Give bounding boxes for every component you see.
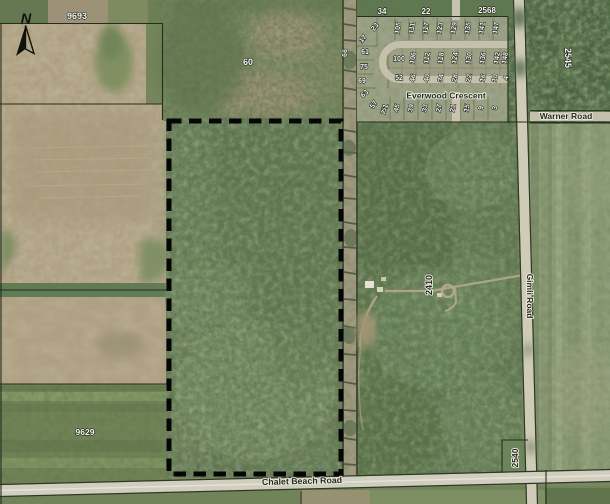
- svg-text:100: 100: [393, 56, 405, 63]
- svg-text:9693: 9693: [67, 11, 87, 21]
- svg-text:2410: 2410: [424, 275, 434, 295]
- svg-text:Everwood Crescent: Everwood Crescent: [406, 91, 486, 101]
- svg-text:33: 33: [421, 104, 429, 113]
- svg-text:34: 34: [378, 7, 387, 16]
- svg-text:2568: 2568: [478, 6, 496, 15]
- svg-text:2540: 2540: [510, 448, 520, 467]
- svg-text:40: 40: [423, 74, 431, 83]
- svg-text:52: 52: [395, 75, 403, 82]
- svg-text:15: 15: [463, 104, 471, 113]
- svg-text:22: 22: [465, 74, 473, 83]
- svg-text:28: 28: [451, 74, 459, 83]
- svg-text:27: 27: [435, 104, 443, 113]
- svg-text:21: 21: [449, 104, 457, 113]
- svg-text:22: 22: [422, 7, 431, 16]
- svg-text:Gimli Road: Gimli Road: [525, 274, 535, 319]
- svg-text:16: 16: [479, 74, 487, 83]
- svg-text:75: 75: [360, 64, 368, 71]
- svg-text:34: 34: [437, 74, 445, 83]
- svg-text:Warner Road: Warner Road: [540, 111, 593, 121]
- svg-text:N: N: [21, 12, 32, 28]
- svg-text:61: 61: [361, 49, 369, 56]
- svg-text:66: 66: [342, 49, 350, 57]
- svg-text:2545: 2545: [563, 48, 573, 68]
- svg-text:9629: 9629: [76, 427, 95, 437]
- svg-text:69: 69: [358, 78, 366, 85]
- svg-text:10: 10: [491, 74, 499, 83]
- svg-text:46: 46: [409, 74, 417, 83]
- svg-text:39: 39: [407, 104, 415, 113]
- svg-text:60: 60: [243, 57, 253, 67]
- svg-text:Chalet Beach Road: Chalet Beach Road: [262, 475, 342, 487]
